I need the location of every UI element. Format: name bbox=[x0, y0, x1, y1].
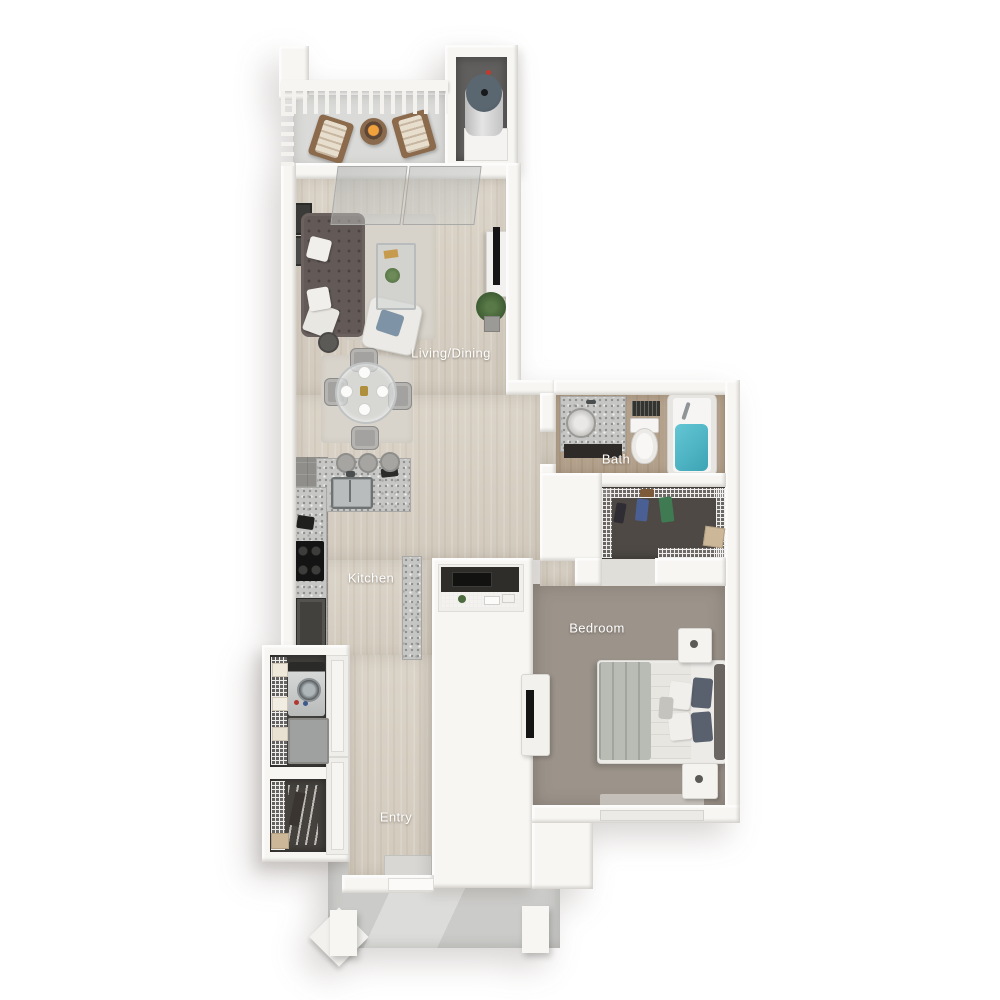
porch-post bbox=[522, 906, 549, 953]
plate bbox=[358, 403, 371, 416]
wall-bath-left-upper bbox=[540, 393, 556, 432]
flat-tv bbox=[493, 227, 500, 285]
door-mat bbox=[384, 855, 432, 876]
vanity-faucet bbox=[586, 400, 596, 404]
balcony-railing-slats bbox=[281, 91, 448, 114]
toilet bbox=[631, 428, 658, 464]
wall-bedroom-top-a bbox=[575, 558, 602, 586]
bathtub-water bbox=[675, 424, 708, 471]
wall-wing-top bbox=[554, 380, 740, 395]
dishwasher bbox=[296, 598, 326, 652]
sliding-glass-door bbox=[402, 166, 481, 225]
plate bbox=[340, 385, 353, 398]
label-bedroom: Bedroom bbox=[569, 621, 625, 636]
vanity-sink bbox=[566, 408, 596, 438]
entry-floor bbox=[348, 655, 434, 877]
sliding-glass-door bbox=[330, 166, 407, 225]
vent-grille bbox=[632, 401, 660, 416]
porch-post bbox=[330, 910, 357, 956]
nightstand-lamp bbox=[695, 775, 703, 783]
dining-chair bbox=[351, 426, 379, 450]
desk-plant bbox=[458, 595, 466, 603]
stove bbox=[295, 541, 324, 581]
dresser-tv bbox=[526, 690, 534, 738]
bed-pillow bbox=[691, 711, 714, 743]
plate bbox=[358, 366, 371, 379]
closet-door bbox=[326, 655, 349, 757]
dryer bbox=[288, 718, 329, 764]
side-table bbox=[318, 332, 339, 353]
wall-bedroom-top-b bbox=[655, 558, 726, 586]
table-centerpiece bbox=[360, 386, 368, 396]
water-heater-pipe bbox=[486, 70, 491, 75]
desk-papers bbox=[484, 596, 500, 605]
nightstand-lamp bbox=[690, 640, 698, 648]
hanging-clothes bbox=[635, 498, 649, 521]
washer-knob bbox=[303, 701, 308, 706]
coffee-table-plant bbox=[385, 268, 400, 283]
label-entry: Entry bbox=[380, 810, 412, 825]
floorplan-canvas: Living/Dining Bath Kitchen Bedroom Entry bbox=[0, 0, 1000, 1000]
kitchen-peninsula bbox=[402, 556, 422, 660]
wall-living-right bbox=[506, 163, 521, 395]
closet-shelf-left bbox=[602, 488, 612, 558]
balcony-side-railing bbox=[281, 104, 294, 166]
bar-stool bbox=[358, 453, 378, 473]
kitchen-sink bbox=[331, 477, 373, 509]
washer-knob bbox=[294, 700, 299, 705]
entry-door bbox=[388, 878, 434, 891]
bedroom-door-threshold bbox=[540, 560, 576, 586]
plate bbox=[376, 385, 389, 398]
closet-basket bbox=[640, 489, 654, 497]
desk-papers bbox=[502, 594, 515, 603]
sink-faucet bbox=[346, 471, 355, 477]
accent-pillow bbox=[658, 697, 674, 720]
sink-divider bbox=[349, 480, 351, 502]
desk-laptop bbox=[452, 572, 492, 587]
bar-stool bbox=[336, 453, 356, 473]
storage-box bbox=[703, 526, 726, 549]
closet-door bbox=[326, 757, 349, 855]
balcony-railing bbox=[281, 80, 448, 91]
fire-table bbox=[360, 118, 387, 145]
sofa-pillow bbox=[306, 286, 331, 311]
washer-door bbox=[297, 678, 321, 702]
bath-door-threshold bbox=[540, 430, 556, 466]
wall-closet-left-mass bbox=[540, 473, 602, 561]
towel-stack bbox=[272, 727, 288, 741]
closet-shelf-bottom bbox=[658, 548, 726, 558]
towel-stack bbox=[272, 697, 288, 711]
bed-pillow bbox=[691, 677, 714, 709]
bar-stool bbox=[380, 452, 400, 472]
bed-blanket bbox=[599, 662, 651, 760]
label-living-dining: Living/Dining bbox=[411, 346, 491, 361]
plant-pot bbox=[484, 316, 500, 332]
water-heater-valve bbox=[481, 89, 488, 96]
bedroom-window bbox=[600, 810, 704, 821]
label-bath: Bath bbox=[602, 452, 630, 467]
towel-stack bbox=[272, 663, 288, 677]
wall-left-outer bbox=[281, 163, 296, 655]
floorplan: Living/Dining Bath Kitchen Bedroom Entry bbox=[0, 0, 1000, 1000]
wall-right-outer bbox=[725, 380, 740, 822]
storage-box bbox=[271, 833, 289, 849]
label-kitchen: Kitchen bbox=[348, 571, 394, 586]
closet-threshold bbox=[602, 559, 655, 586]
coffee-maker bbox=[296, 515, 315, 530]
